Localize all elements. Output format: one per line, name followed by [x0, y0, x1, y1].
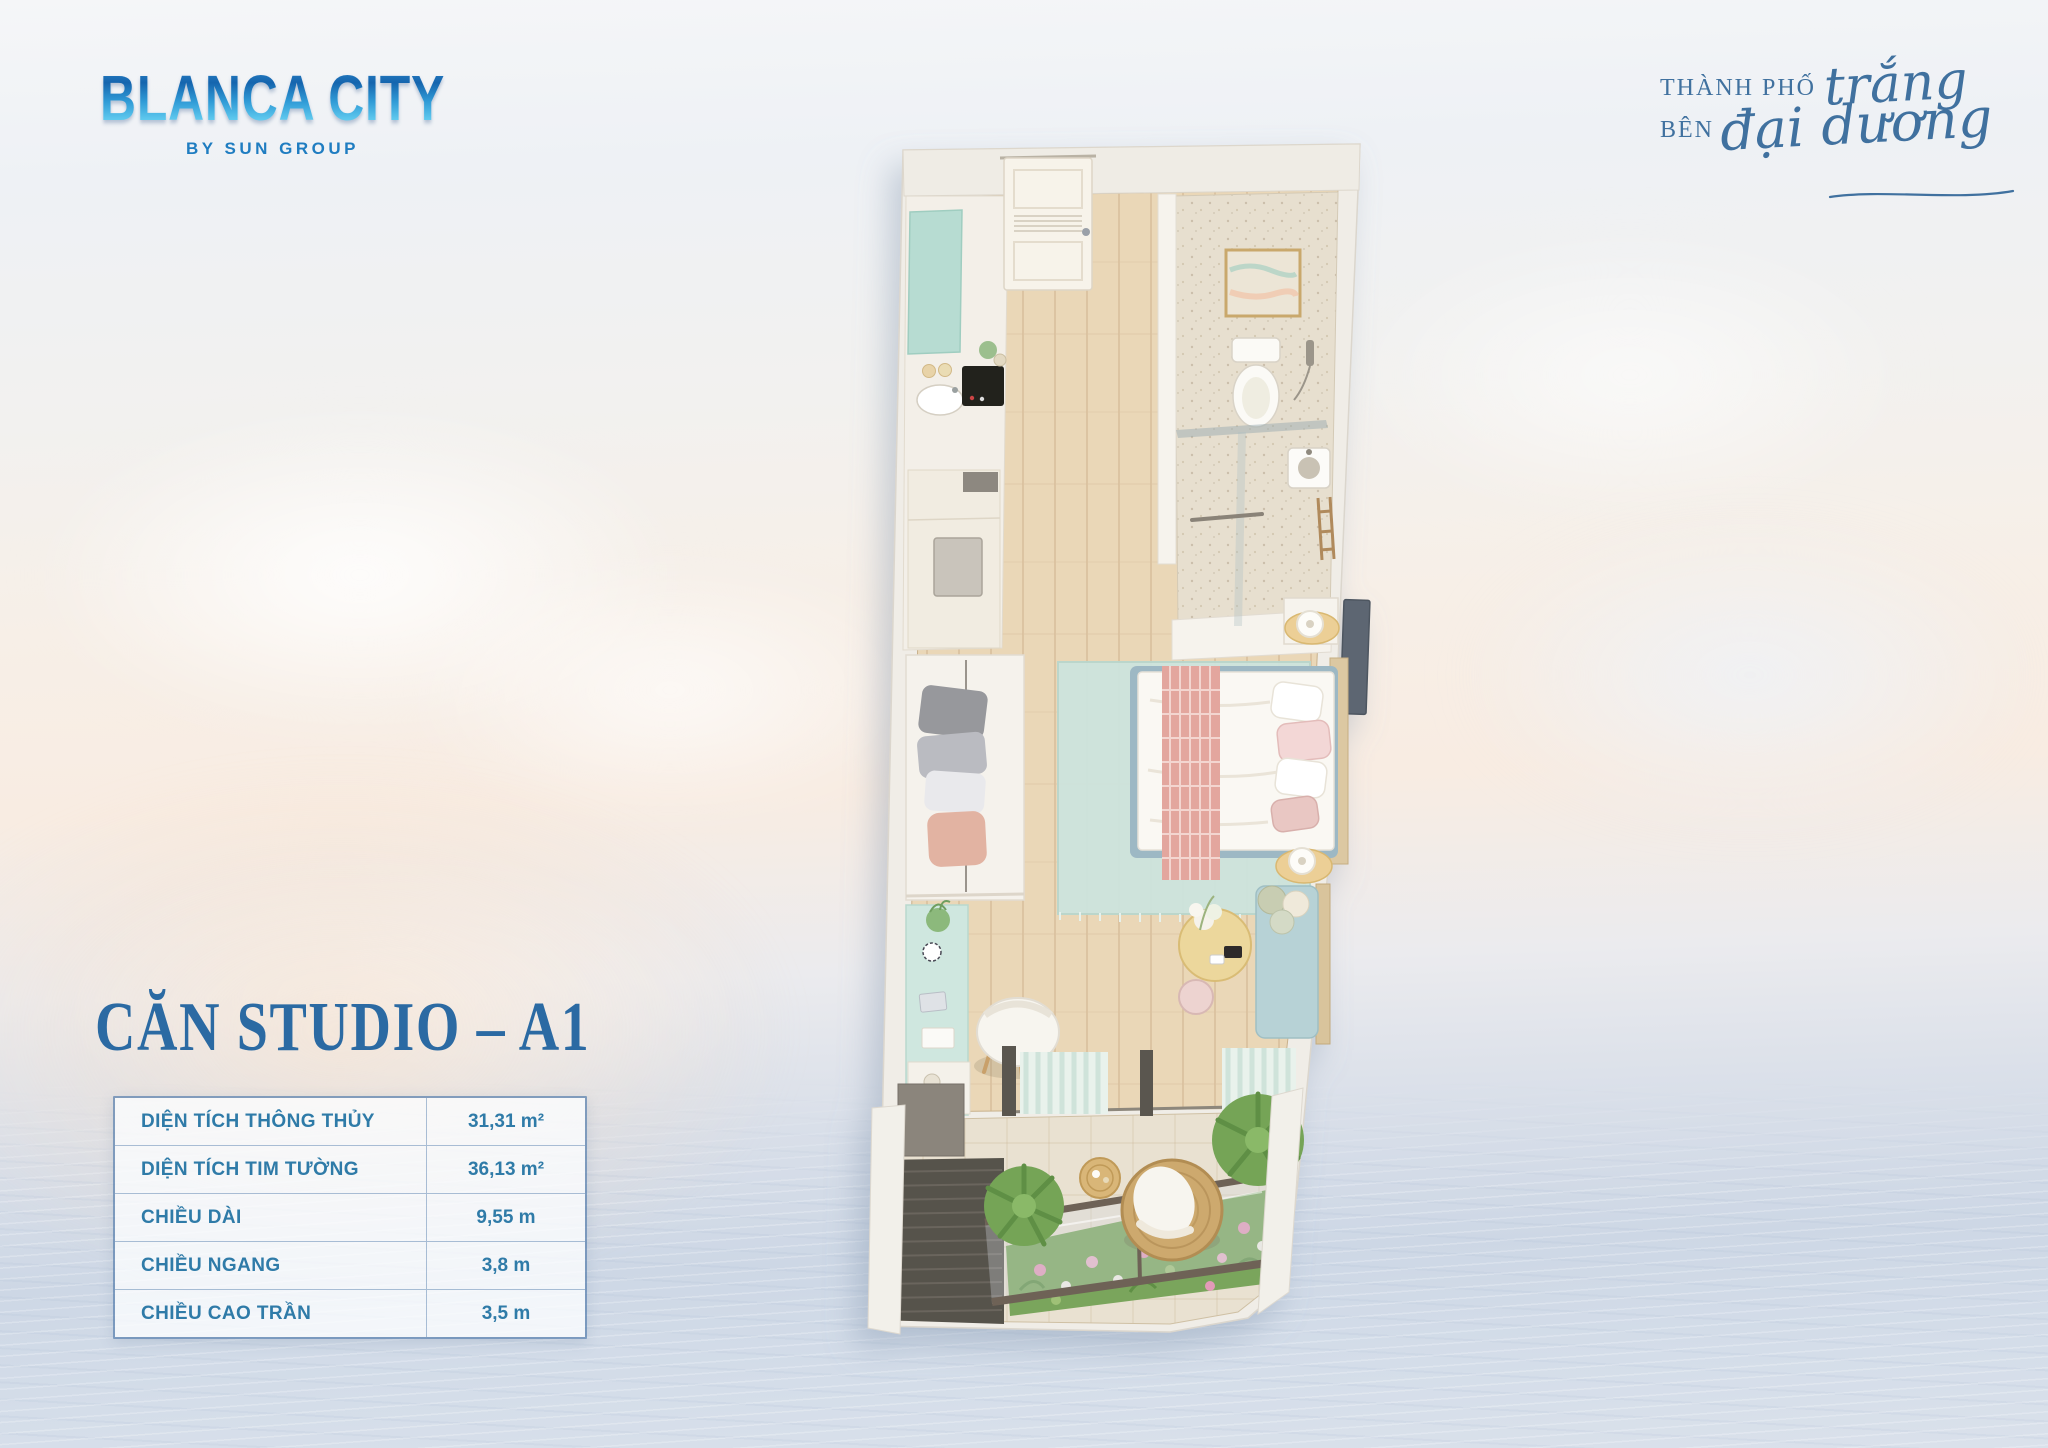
nightstand-lamp-top [1285, 611, 1339, 644]
desk-vanity [906, 901, 970, 1115]
spec-label: DIỆN TÍCH TIM TƯỜNG [115, 1146, 427, 1193]
kitchen-area [903, 196, 1008, 650]
spec-value: 3,5 m [427, 1290, 585, 1337]
spec-label: CHIỀU CAO TRẦN [115, 1290, 427, 1337]
brochure-page: BLANCA CITY BY SUN GROUP THÀNH PHỐ trắng… [0, 0, 2048, 1448]
washbasin [1288, 448, 1330, 488]
spec-value: 3,8 m [427, 1242, 585, 1289]
spec-label: CHIỀU NGANG [115, 1242, 427, 1289]
spec-row: CHIỀU DÀI 9,55 m [115, 1193, 585, 1241]
wardrobe [906, 655, 1024, 900]
daybed [1256, 884, 1330, 1044]
balcony-table [1080, 1158, 1120, 1198]
spec-label: CHIỀU DÀI [115, 1194, 427, 1241]
hanging-chair [1122, 1158, 1222, 1260]
floor-plan [868, 144, 1370, 1334]
toilet [1232, 338, 1280, 427]
spec-value: 36,13 m² [427, 1146, 585, 1193]
spec-row: CHIỀU NGANG 3,8 m [115, 1241, 585, 1289]
spec-value: 31,31 m² [427, 1098, 585, 1145]
balcony-plant-left [984, 1166, 1064, 1246]
balcony-cabinet [898, 1084, 964, 1156]
balcony-wall-left [868, 1105, 905, 1334]
wall-art [1226, 250, 1300, 316]
spec-label: DIỆN TÍCH THÔNG THỦY [115, 1098, 427, 1145]
spec-value: 9,55 m [427, 1194, 585, 1241]
stool [1179, 980, 1213, 1014]
unit-title: CĂN STUDIO – A1 [95, 988, 590, 1068]
spec-row: CHIỀU CAO TRẦN 3,5 m [115, 1289, 585, 1337]
bathroom-area [1158, 192, 1338, 660]
nightstand-lamp-bottom [1276, 848, 1332, 883]
spec-row: DIỆN TÍCH THÔNG THỦY 31,31 m² [115, 1098, 585, 1145]
spec-table: DIỆN TÍCH THÔNG THỦY 31,31 m² DIỆN TÍCH … [113, 1096, 587, 1339]
spec-row: DIỆN TÍCH TIM TƯỜNG 36,13 m² [115, 1145, 585, 1193]
